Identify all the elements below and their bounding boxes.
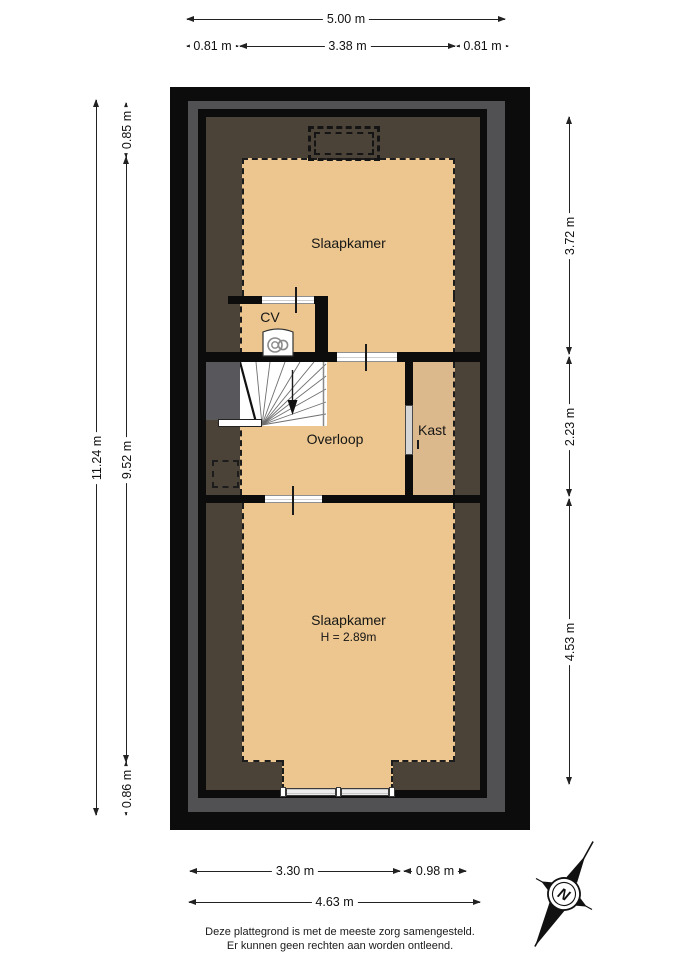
door-tick-cv [295, 287, 297, 313]
floorplan-page: 5.00 m 0.81 m 3.38 m 0.81 m 11.24 m 0.85… [0, 0, 679, 960]
footer-line2: Er kunnen geen rechten aan worden ontlee… [100, 939, 580, 953]
label-cv: CV [257, 309, 283, 325]
dim-left-bottom-label: 0.86 m [120, 765, 134, 811]
label-slaapkamer-bottom-height: H = 2.89m [242, 630, 455, 644]
dim-bottom-total: 4.63 m [189, 897, 480, 909]
dim-left-top-label: 0.85 m [120, 107, 134, 153]
dim-right-top-label: 3.72 m [563, 212, 577, 258]
stairs [240, 362, 327, 426]
knee-wall-dotted-bottom-left [242, 760, 282, 762]
dim-bottom-total-label: 4.63 m [311, 895, 357, 909]
dim-top-left: 0.81 m [187, 41, 238, 53]
window-cap-right [389, 787, 395, 797]
dim-top-right-label: 0.81 m [459, 39, 505, 53]
dim-left-mid: 9.52 m [121, 157, 133, 762]
wall-overloop-bottom [206, 495, 480, 503]
dim-right-mid-label: 2.23 m [563, 403, 577, 449]
dim-top-right: 0.81 m [457, 41, 508, 53]
cv-boiler-icon [262, 325, 294, 357]
label-slaapkamer-top: Slaapkamer [242, 235, 455, 251]
stairwell-void [206, 362, 240, 420]
dim-top-total-label: 5.00 m [323, 12, 369, 26]
dim-right-mid: 2.23 m [564, 357, 576, 496]
dim-left-total: 11.24 m [91, 100, 103, 815]
door-tick-slaapkamer-top [365, 344, 367, 371]
dim-bottom-right: 0.98 m [404, 866, 466, 878]
chimney-duct-symbol [212, 460, 239, 488]
dim-bottom-right-label: 0.98 m [412, 864, 458, 878]
window-pane-left [286, 788, 336, 796]
stair-landing-edge [218, 419, 262, 427]
room-dormer-area [282, 760, 393, 790]
dim-top-total: 5.00 m [187, 14, 505, 26]
roof-window-inner-line [314, 132, 374, 155]
footer-line1: Deze plattegrond is met de meeste zorg s… [100, 925, 580, 939]
dim-top-mid: 3.38 m [240, 41, 455, 53]
label-slaapkamer-bottom: Slaapkamer [242, 612, 455, 628]
dim-left-total-label: 11.24 m [90, 431, 104, 483]
dim-left-mid-label: 9.52 m [120, 436, 134, 482]
dim-left-bottom: 0.86 m [121, 762, 133, 815]
label-kast: Kast [408, 422, 456, 438]
door-opening-slaapkamer-top [337, 352, 397, 362]
dim-right-top: 3.72 m [564, 117, 576, 354]
room-slaapkamer-top-area [242, 158, 455, 296]
dim-top-left-label: 0.81 m [189, 39, 235, 53]
roof-window-symbol [308, 126, 380, 161]
dim-bottom-left: 3.30 m [190, 866, 400, 878]
label-overloop: Overloop [250, 431, 420, 447]
dim-top-mid-label: 3.38 m [324, 39, 370, 53]
knee-wall-dotted-bottom-right [393, 760, 455, 762]
door-opening-cv [262, 296, 314, 304]
dim-bottom-left-label: 3.30 m [272, 864, 318, 878]
door-tick-slaapkamer-bottom [292, 486, 294, 515]
dim-right-bottom-label: 4.53 m [563, 618, 577, 664]
dim-right-bottom: 4.53 m [564, 499, 576, 784]
window-pane-right [341, 788, 389, 796]
dim-left-top: 0.85 m [121, 103, 133, 157]
footer-disclaimer: Deze plattegrond is met de meeste zorg s… [100, 925, 580, 953]
